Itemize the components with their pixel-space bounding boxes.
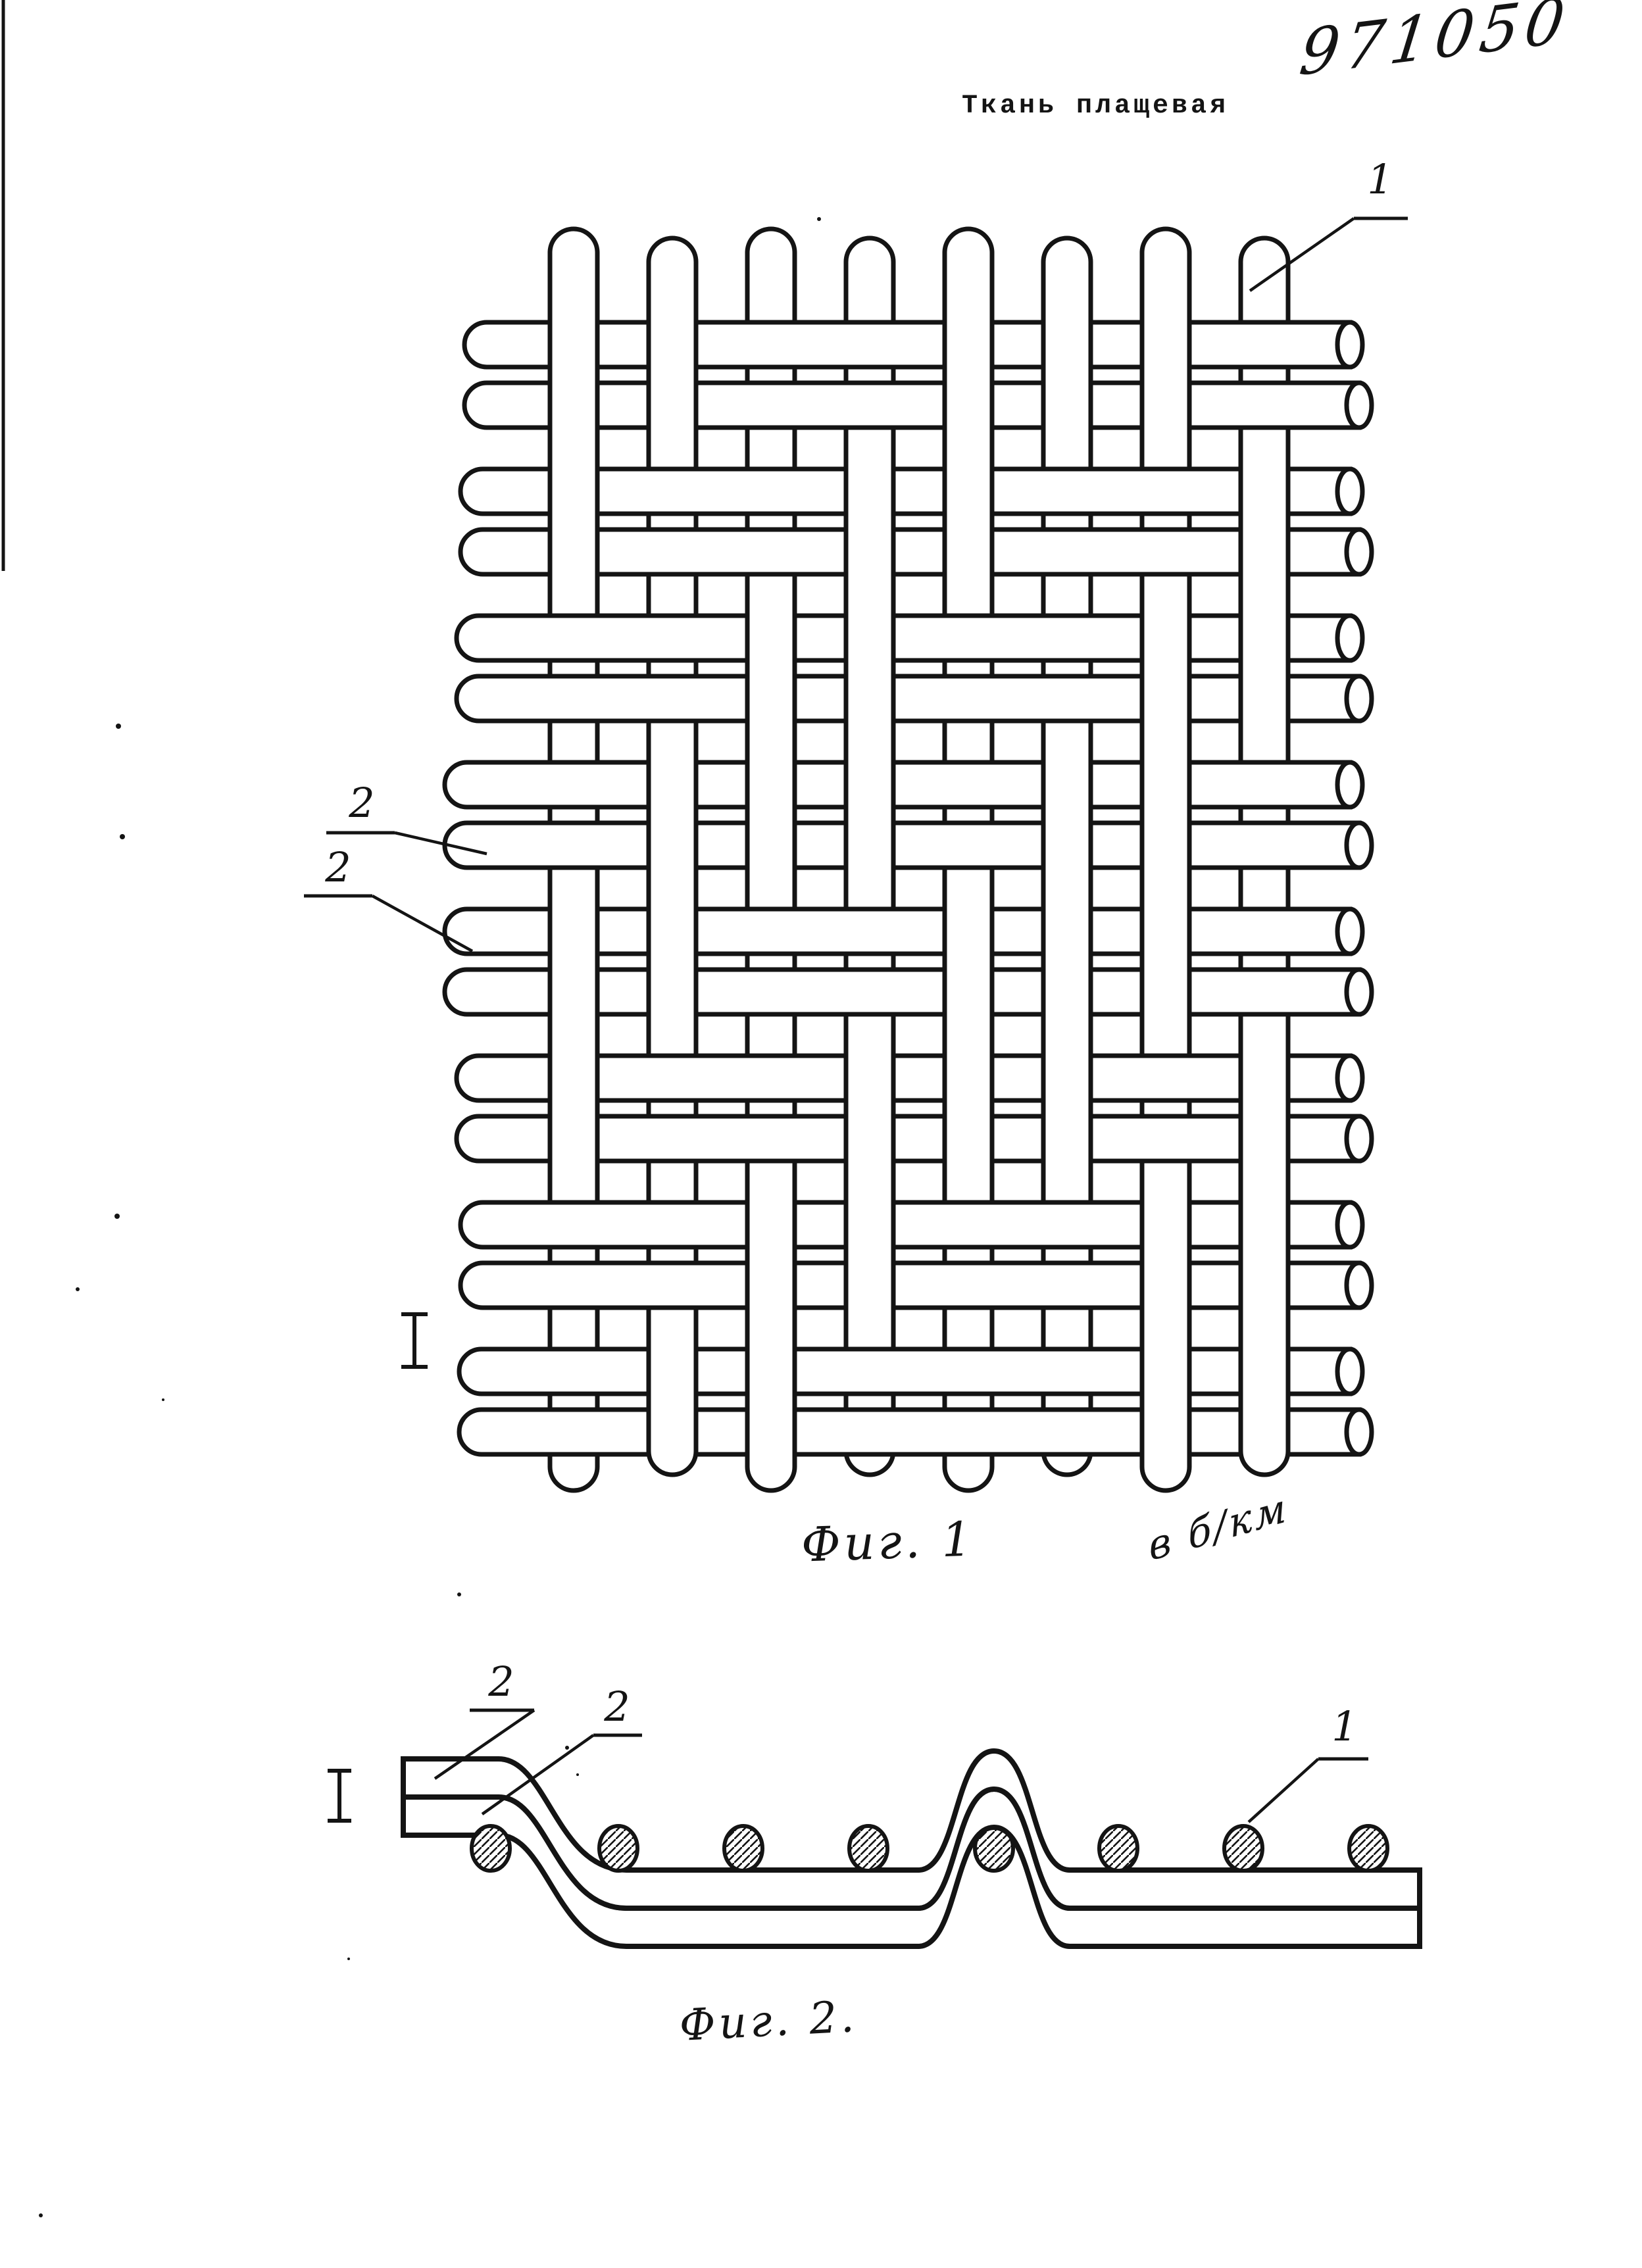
figure2-weft-upper-ref-label: 2 [468,1662,534,1702]
figure2-caption: Фиг. 2. [675,1995,861,2048]
patent-drawing-sheet: Ткань плащевая 971050 1 2 2 Фиг. 1 в б/к… [0,0,1642,2268]
figure1-caption: Фиг. 1 [789,1515,987,1569]
figure2-weft-lower-ref-label: 2 [592,1687,642,1727]
page-title: Ткань плащевая [947,93,1243,120]
figure1-weft-upper-ref-label: 2 [328,783,396,824]
figure2-warp-ref-label: 1 [1321,1706,1368,1747]
figure1-weft-lower-ref-label: 2 [305,847,371,888]
figure1-warp-ref-label: 1 [1353,159,1408,200]
line-art-canvas [0,0,1642,2268]
